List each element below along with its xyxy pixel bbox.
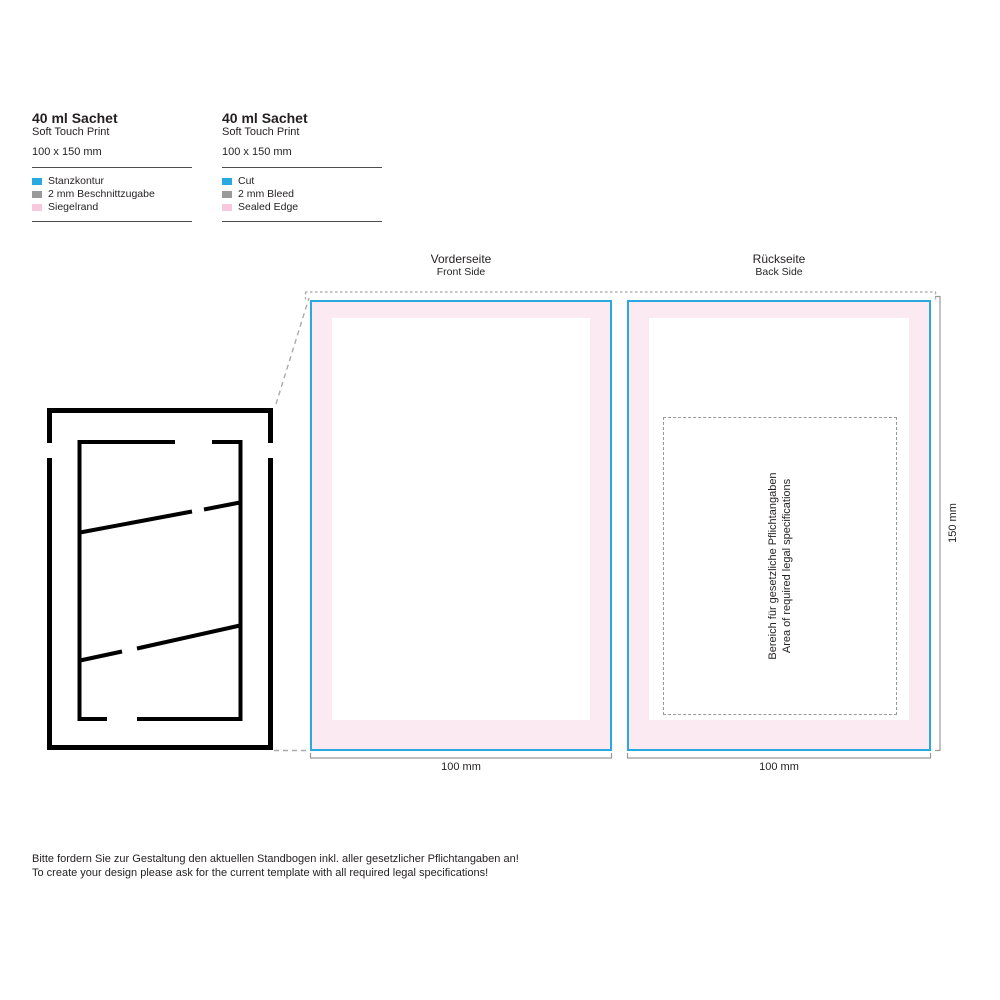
legend-item: Stanzkontur <box>32 175 192 187</box>
front-side-label-de: Vorderseite <box>361 252 561 266</box>
back-side-panel: Bereich für gesetzliche Pflichtangaben A… <box>627 300 931 751</box>
footer-note-en: To create your design please ask for the… <box>32 866 519 880</box>
legend-item-label: Cut <box>238 176 254 187</box>
print-type-en: Soft Touch Print <box>222 126 382 139</box>
die-outer-contour <box>47 408 273 750</box>
product-dimensions-en: 100 x 150 mm <box>222 146 382 159</box>
front-side-panel <box>310 300 612 751</box>
legend-german: 40 ml Sachet Soft Touch Print 100 x 150 … <box>32 110 192 222</box>
bleed-color-swatch <box>222 191 232 198</box>
legend-item: Sealed Edge <box>222 201 382 213</box>
template-sheet: 40 ml Sachet Soft Touch Print 100 x 150 … <box>0 0 1000 1000</box>
product-title-en: 40 ml Sachet <box>222 110 382 126</box>
front-print-area <box>332 318 590 720</box>
footer-note: Bitte fordern Sie zur Gestaltung den akt… <box>32 852 519 880</box>
legal-specifications-area: Bereich für gesetzliche Pflichtangaben A… <box>663 417 897 715</box>
legend-item-label: Siegelrand <box>48 202 98 213</box>
sealed-edge-color-swatch <box>222 204 232 211</box>
legend-item-label: 2 mm Bleed <box>238 189 294 200</box>
legend-english: 40 ml Sachet Soft Touch Print 100 x 150 … <box>222 110 382 222</box>
legend-items-de: Stanzkontur 2 mm Beschnittzugabe Siegelr… <box>32 175 192 213</box>
back-side-label-de: Rückseite <box>679 252 879 266</box>
height-dimension: 150 mm <box>947 503 959 543</box>
legend-items-en: Cut 2 mm Bleed Sealed Edge <box>222 175 382 213</box>
legal-specifications-text: Bereich für gesetzliche Pflichtangaben A… <box>766 416 794 716</box>
bleed-dash-line <box>305 292 936 300</box>
legend-item: Siegelrand <box>32 201 192 213</box>
sealed-edge-color-swatch <box>32 204 42 211</box>
legend-item: 2 mm Bleed <box>222 188 382 200</box>
divider <box>32 167 192 168</box>
product-dimensions-de: 100 x 150 mm <box>32 146 192 159</box>
back-side-label-en: Back Side <box>679 266 879 278</box>
bleed-color-swatch <box>32 191 42 198</box>
front-side-header: Vorderseite Front Side <box>361 252 561 278</box>
print-type-de: Soft Touch Print <box>32 126 192 139</box>
legend-item-label: Stanzkontur <box>48 176 104 187</box>
legal-line-en: Area of required legal specifications <box>780 416 794 716</box>
connector-lines <box>274 298 309 751</box>
cut-color-swatch <box>32 178 42 185</box>
divider <box>222 167 382 168</box>
back-width-dimension: 100 mm <box>729 761 829 773</box>
divider <box>32 221 192 222</box>
legal-line-de: Bereich für gesetzliche Pflichtangaben <box>766 416 780 716</box>
legend-item: Cut <box>222 175 382 187</box>
cut-color-swatch <box>222 178 232 185</box>
front-side-label-en: Front Side <box>361 266 561 278</box>
footer-note-de: Bitte fordern Sie zur Gestaltung den akt… <box>32 852 519 866</box>
product-title-de: 40 ml Sachet <box>32 110 192 126</box>
legend-item-label: 2 mm Beschnittzugabe <box>48 189 155 200</box>
divider <box>222 221 382 222</box>
legend-item: 2 mm Beschnittzugabe <box>32 188 192 200</box>
front-width-dimension: 100 mm <box>411 761 511 773</box>
back-side-header: Rückseite Back Side <box>679 252 879 278</box>
die-inner-contour <box>78 440 242 721</box>
legend-item-label: Sealed Edge <box>238 202 298 213</box>
die-tear-lines <box>80 503 240 661</box>
